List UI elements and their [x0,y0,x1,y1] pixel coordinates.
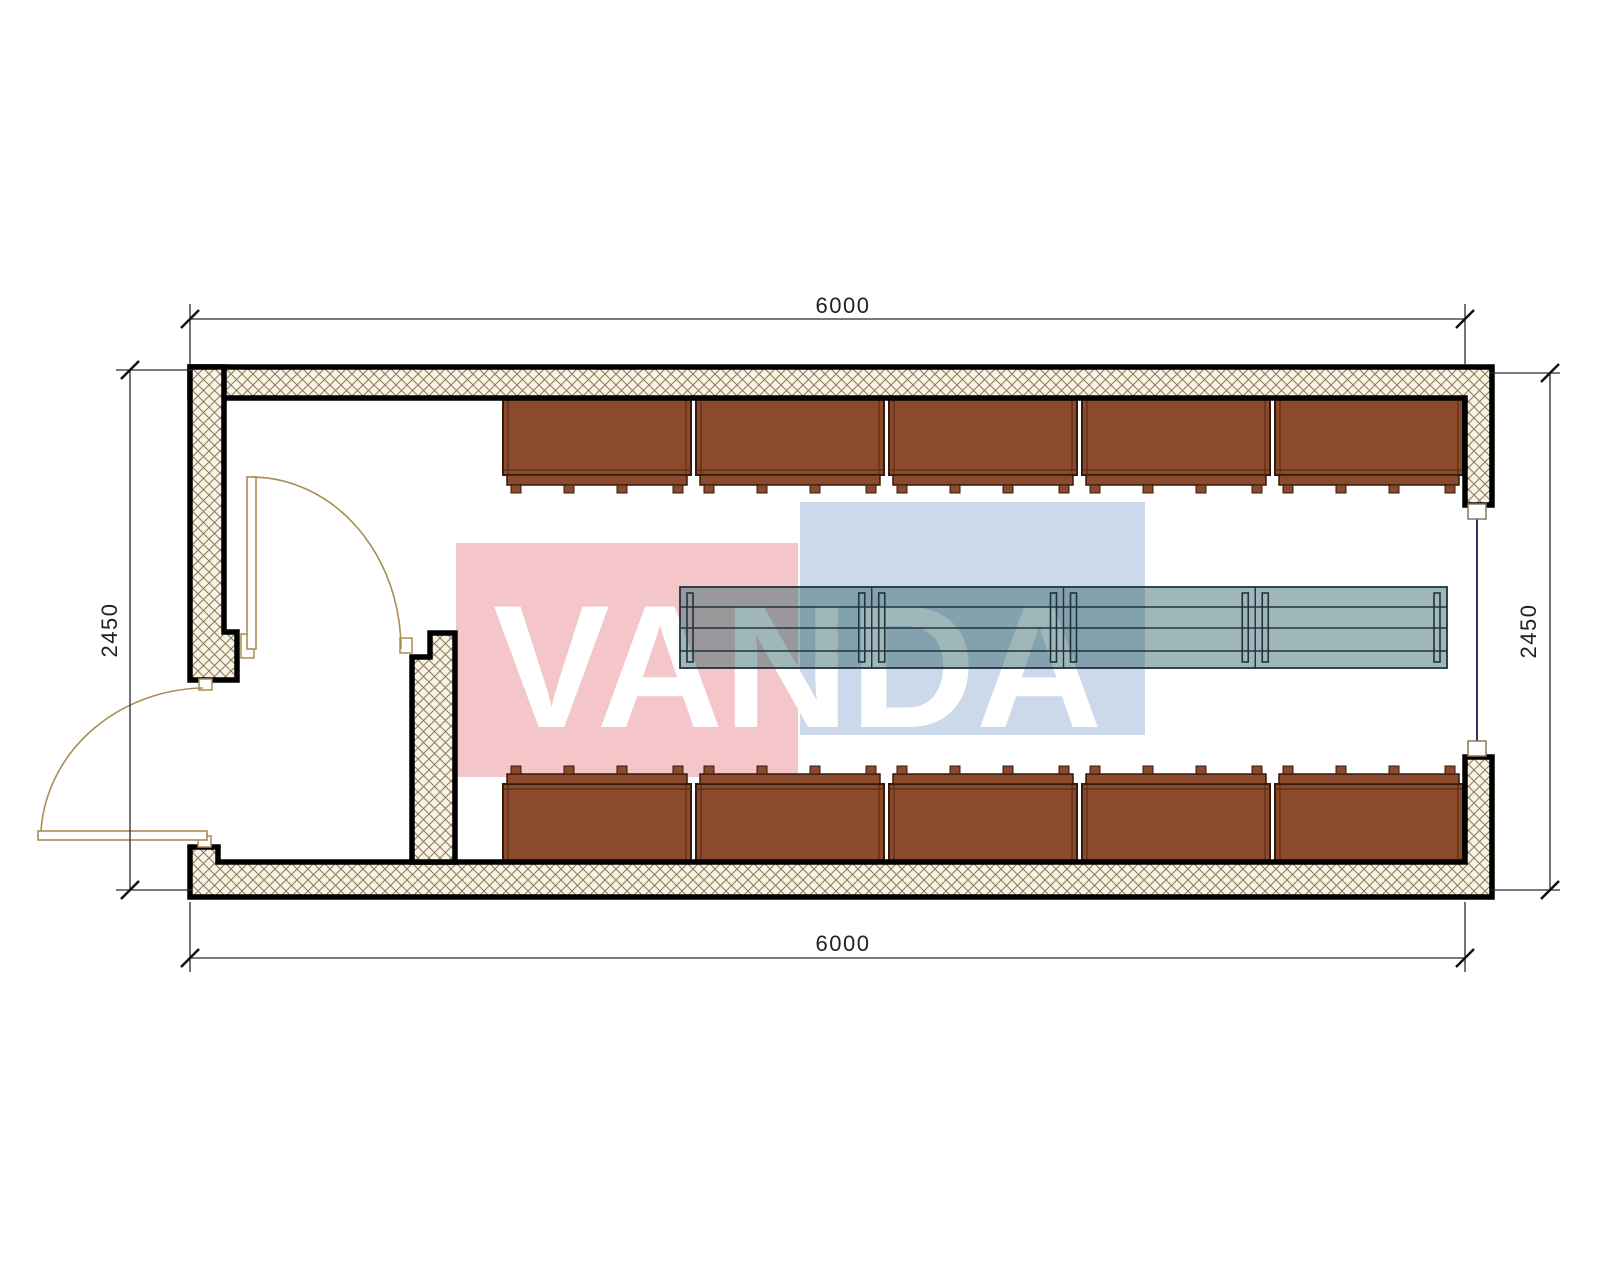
wardrobe-plinth [893,774,1073,784]
wardrobe-foot [564,485,574,493]
wardrobe-plinth [507,475,687,485]
dim-label-left: 2450 [97,603,122,658]
door-frame [400,638,412,653]
wardrobe-body [1082,784,1270,862]
wardrobe-foot [897,485,907,493]
wardrobe-foot [950,766,960,774]
wardrobe-foot [511,766,521,774]
wardrobe-foot [1389,485,1399,493]
wardrobe-unit [1082,397,1270,493]
wardrobe-unit [503,766,691,862]
wardrobe-foot [757,766,767,774]
wardrobe-plinth [700,475,880,485]
wardrobe-row-top [503,397,1463,493]
wardrobe-unit [889,397,1077,493]
wardrobe-foot [1283,766,1293,774]
wardrobe-foot [1003,766,1013,774]
wardrobe-body [696,784,884,862]
wardrobe-body [696,397,884,475]
wardrobe-foot [704,766,714,774]
wardrobe-foot [1252,766,1262,774]
wardrobe-body [889,784,1077,862]
wardrobe-unit [1275,397,1463,493]
wardrobe-plinth [1086,475,1266,485]
floor-plan-page: VANDA [0,0,1600,1280]
wardrobe-row-bottom [503,766,1463,862]
wardrobe-plinth [700,774,880,784]
wardrobe-unit [696,766,884,862]
wardrobe-foot [1143,485,1153,493]
wardrobe-foot [810,485,820,493]
dim-label-right: 2450 [1516,604,1541,659]
partition-wall [412,633,455,862]
corner-post [1468,741,1486,756]
wardrobe-foot [950,485,960,493]
wardrobe-foot [1059,485,1069,493]
wardrobe-body [1275,397,1463,475]
wardrobe-foot [1336,485,1346,493]
dim-label-top: 6000 [816,293,871,318]
wardrobe-unit [889,766,1077,862]
wardrobe-foot [757,485,767,493]
wardrobe-foot [1143,766,1153,774]
wardrobe-plinth [1086,774,1266,784]
wardrobe-foot [1090,766,1100,774]
wardrobe-foot [673,485,683,493]
wardrobe-foot [617,766,627,774]
corner-post [1468,504,1486,519]
wardrobe-foot [1252,485,1262,493]
wardrobe-body [503,784,691,862]
wardrobe-foot [1196,485,1206,493]
meeting-table [680,587,1447,668]
wardrobe-foot [1336,766,1346,774]
wardrobe-foot [1059,766,1069,774]
wardrobe-plinth [1279,475,1459,485]
wardrobe-foot [897,766,907,774]
wardrobe-foot [704,485,714,493]
wardrobe-unit [1082,766,1270,862]
wardrobe-foot [673,766,683,774]
wardrobe-foot [564,766,574,774]
wardrobe-foot [866,485,876,493]
wardrobe-unit [1275,766,1463,862]
wardrobe-body [889,397,1077,475]
wardrobe-foot [1445,485,1455,493]
wardrobe-foot [1003,485,1013,493]
wardrobe-plinth [1279,774,1459,784]
wardrobe-foot [1283,485,1293,493]
wardrobe-foot [1196,766,1206,774]
wardrobe-body [1275,784,1463,862]
wardrobe-foot [866,766,876,774]
wardrobe-foot [1090,485,1100,493]
interior-door-leaf [247,477,256,649]
wardrobe-plinth [507,774,687,784]
wardrobe-foot [810,766,820,774]
wardrobe-foot [1389,766,1399,774]
wardrobe-unit [503,397,691,493]
wardrobe-body [1082,397,1270,475]
wardrobe-foot [511,485,521,493]
wardrobe-foot [617,485,627,493]
dim-label-bottom: 6000 [816,931,871,956]
wardrobe-foot [1445,766,1455,774]
wardrobe-body [503,397,691,475]
entry-door-leaf [38,831,207,840]
floor-plan-canvas: VANDA [0,0,1600,1280]
wardrobe-unit [696,397,884,493]
wardrobe-plinth [893,475,1073,485]
